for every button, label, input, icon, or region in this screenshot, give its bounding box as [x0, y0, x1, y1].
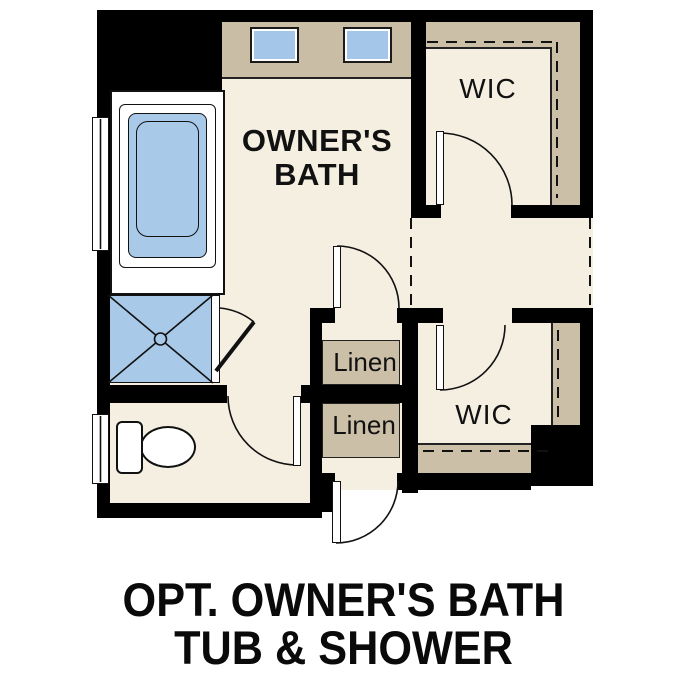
wall-bath-wic-divider — [411, 10, 426, 218]
wic-top-interior — [426, 47, 552, 205]
wall-top-left-block — [97, 10, 222, 90]
wall-right-upper — [580, 10, 593, 218]
bathtub-basin — [136, 121, 199, 237]
entry-door — [332, 481, 341, 543]
wall-wic-top-south-left — [411, 205, 441, 218]
owners-bath-label-line2: BATH — [227, 158, 407, 192]
wic-bottom-door — [436, 325, 444, 390]
plan-caption-line1: OPT. OWNER'S BATH — [27, 576, 659, 624]
toilet-bowl — [140, 426, 196, 468]
window-lower — [92, 414, 109, 484]
toilet-tank — [116, 421, 143, 474]
owners-bath-label-line1: OWNER'S — [227, 124, 407, 158]
wall-corner-block-bottom-right — [531, 425, 593, 486]
wic-bottom-label: WIC — [434, 399, 534, 431]
shower-glass-panel — [211, 295, 220, 383]
vanity-sink-left — [250, 27, 299, 63]
linen-bottom-label: Linen — [314, 410, 414, 441]
owners-bath-label: OWNER'S BATH — [227, 124, 407, 192]
linen-bath-door — [333, 246, 341, 308]
entry-door-arc — [336, 481, 398, 543]
wall-bottom — [97, 503, 322, 518]
plan-caption: OPT. OWNER'S BATH TUB & SHOWER — [27, 576, 659, 672]
wall-linen-divider — [301, 385, 418, 403]
window-upper — [92, 117, 109, 251]
linen-top-label: Linen — [315, 347, 415, 378]
wic-top-door — [436, 131, 444, 205]
floor-plan: OWNER'S BATH WIC WIC Linen Linen OPT. OW… — [0, 0, 687, 687]
wall-wic-top-south-right — [511, 205, 593, 218]
vanity-sink-right — [343, 27, 392, 63]
wic-top-label: WIC — [438, 73, 538, 105]
plan-caption-line2: TUB & SHOWER — [27, 624, 659, 672]
wall-right-lower — [580, 308, 593, 425]
wall-toilet-room-north — [97, 385, 227, 403]
toilet-room-door — [293, 396, 301, 466]
shower — [108, 295, 213, 383]
